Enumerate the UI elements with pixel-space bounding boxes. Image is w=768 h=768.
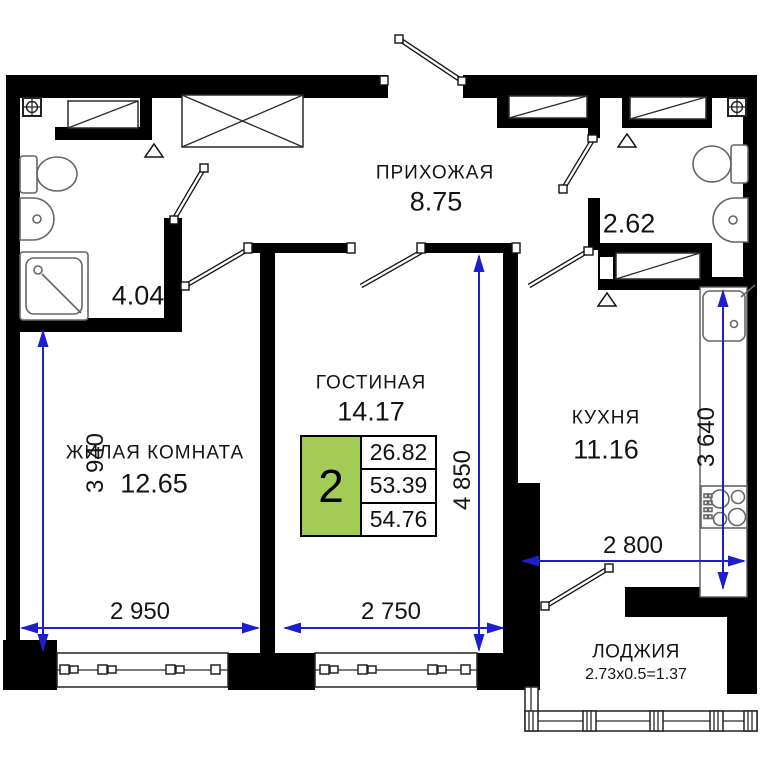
hallway-name: ПРИХОЖАЯ [376,164,494,183]
living-room-area: 12.65 [120,471,188,498]
dim-lounge-width-label: 2 750 [361,600,421,624]
door-swing [361,252,421,286]
dim-kitchen-width-label: 2 800 [603,534,663,558]
kitchen-area: 11.16 [573,437,639,464]
apartment-summary-box: 2 26.82 53.39 54.76 [300,435,437,537]
dim-living-depth-label: 3 940 [84,433,108,493]
window [315,653,477,687]
bathroom-area: 4.04 [112,283,165,310]
opening-triangle-icon [618,134,636,147]
wc-area: 2.62 [603,211,656,238]
vent-icon [728,98,746,116]
wall [164,218,182,322]
door-swing [541,564,613,610]
dim-lounge-depth-label: 4 850 [451,450,475,510]
door-swing [181,251,245,290]
summary-areas: 26.82 53.39 54.76 [362,437,435,535]
wall [260,253,275,655]
vent-icon [23,98,41,116]
toilet-icon [20,156,77,193]
rooms-count-cell: 2 [302,437,362,535]
dim-kitchen-depth-label: 3 640 [695,407,719,467]
door-swing [380,35,466,85]
loggia-glazing [525,687,757,731]
summary-area-row: 54.76 [362,504,435,535]
floor-plan: ПРИХОЖАЯ 8.75 4.04 2.62 ЖИЛАЯ КОМНАТА 12… [0,0,768,768]
wall [6,75,20,647]
loggia-area-formula: 2.73x0.5=1.37 [585,667,687,683]
wall [228,653,315,690]
loggia-name: ЛОДЖИЯ [592,643,680,662]
door-swing [529,247,593,286]
opening-triangle-icon [145,144,163,157]
kitchen-name: КУХНЯ [572,409,640,428]
wall [248,243,353,253]
lounge-area: 14.17 [337,399,405,426]
shower-icon [20,252,88,320]
opening-markers [145,134,636,306]
hallway-area: 8.75 [410,189,463,216]
door-swing [559,135,597,193]
wall [422,243,518,253]
wall-gap [600,257,613,279]
window [57,653,228,687]
dim-living-depth [38,329,49,652]
wall [477,653,540,690]
lounge-name: ГОСТИНАЯ [316,374,426,393]
wall [55,127,152,140]
washbasin-icon [713,198,748,242]
wall [3,640,57,690]
wall [588,198,600,250]
washbasin-icon [20,198,54,240]
summary-area-row: 53.39 [362,470,435,503]
toilet-icon [693,145,748,183]
opening-triangle-icon [598,293,616,306]
wall [503,253,518,483]
wall [727,584,757,694]
dim-living-width-label: 2 950 [110,600,170,624]
door-swing [170,164,208,224]
summary-area-row: 26.82 [362,437,435,470]
wall [140,95,152,140]
